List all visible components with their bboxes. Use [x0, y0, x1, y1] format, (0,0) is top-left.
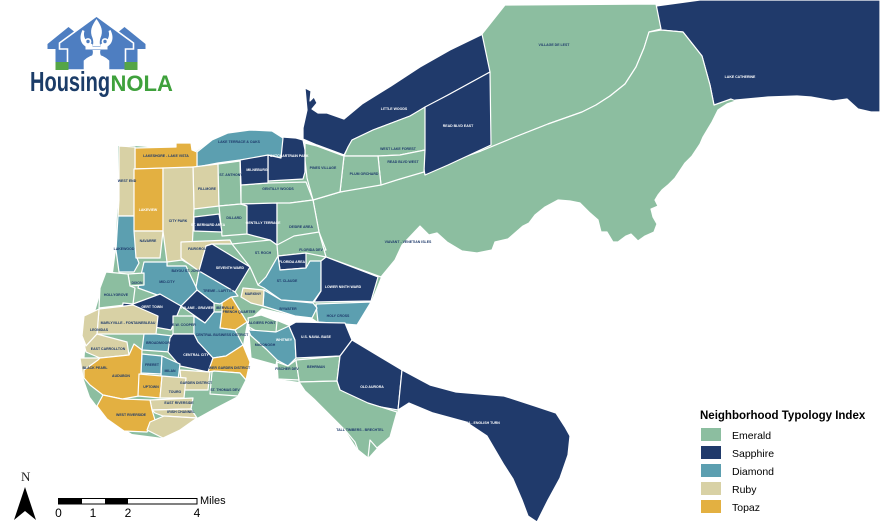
svg-text:VILLAGE DE LEST: VILLAGE DE LEST [539, 43, 571, 47]
svg-text:BAYOU ST. JOHN: BAYOU ST. JOHN [171, 269, 201, 273]
svg-text:FLORIDA DEV: FLORIDA DEV [299, 248, 323, 252]
svg-text:Emerald: Emerald [732, 430, 771, 442]
svg-text:GENTILLY TERRACE: GENTILLY TERRACE [246, 221, 281, 225]
svg-text:ALGIERS POINT: ALGIERS POINT [248, 321, 276, 325]
svg-text:Sapphire: Sapphire [732, 448, 774, 460]
svg-text:CENTRAL BUSINESS DISTRICT: CENTRAL BUSINESS DISTRICT [196, 333, 249, 337]
svg-text:CITY PARK: CITY PARK [169, 219, 188, 223]
svg-text:LAKE CATHERINE: LAKE CATHERINE [725, 75, 756, 79]
svg-text:TULANE - GRAVIER: TULANE - GRAVIER [181, 306, 214, 310]
svg-text:1: 1 [90, 506, 97, 520]
svg-text:FILLMORE: FILLMORE [198, 187, 217, 191]
svg-text:DILLARD: DILLARD [226, 216, 242, 220]
svg-text:LAKESHORE - LAKE VISTA: LAKESHORE - LAKE VISTA [143, 154, 189, 158]
svg-text:Miles: Miles [200, 495, 226, 507]
svg-text:VIAVANT - VENETIAN ISLES: VIAVANT - VENETIAN ISLES [385, 240, 432, 244]
svg-text:NOLA: NOLA [111, 71, 173, 96]
svg-text:CENTRAL CITY: CENTRAL CITY [183, 353, 209, 357]
svg-text:Topaz: Topaz [732, 502, 760, 514]
svg-text:E.W. COOPER: E.W. COOPER [172, 323, 196, 327]
svg-text:LOWER GARDEN DISTRICT: LOWER GARDEN DISTRICT [204, 366, 251, 370]
svg-text:4: 4 [194, 506, 201, 520]
svg-text:LITTLE WOODS: LITTLE WOODS [381, 107, 408, 111]
svg-text:LEONIDAS: LEONIDAS [90, 328, 109, 332]
svg-text:LAKE TERRACE & OAKS: LAKE TERRACE & OAKS [218, 140, 261, 144]
svg-text:HOLY CROSS: HOLY CROSS [327, 314, 350, 318]
svg-text:ST. ANTHONY: ST. ANTHONY [219, 173, 243, 177]
svg-text:TOURO: TOURO [169, 390, 182, 394]
svg-text:Ruby: Ruby [732, 484, 757, 496]
svg-text:Neighborhood Typology Index: Neighborhood Typology Index [700, 410, 866, 422]
svg-text:FRENCH QUARTER: FRENCH QUARTER [223, 310, 256, 314]
svg-text:GERT TOWN: GERT TOWN [141, 305, 163, 309]
svg-text:PLUM ORCHARD: PLUM ORCHARD [350, 172, 379, 176]
svg-text:FRERET: FRERET [145, 363, 160, 367]
svg-text:DESIRE AREA: DESIRE AREA [289, 225, 313, 229]
svg-text:BLACK PEARL: BLACK PEARL [82, 366, 108, 370]
svg-text:DIXON: DIXON [131, 281, 143, 285]
svg-text:Housing: Housing [30, 67, 110, 98]
svg-text:READ BLVD WEST: READ BLVD WEST [387, 160, 419, 164]
svg-text:ST. CLAUDE: ST. CLAUDE [277, 279, 298, 283]
svg-text:AUDUBON: AUDUBON [112, 374, 130, 378]
svg-text:MILNEBURG: MILNEBURG [246, 168, 267, 172]
svg-text:LOWER NINTH WARD: LOWER NINTH WARD [325, 285, 362, 289]
svg-text:LAKEWOOD: LAKEWOOD [114, 247, 135, 251]
svg-text:FAIRGROUNDS: FAIRGROUNDS [188, 247, 215, 251]
svg-text:LAKEVIEW: LAKEVIEW [139, 208, 158, 212]
svg-text:HOLLYGROVE: HOLLYGROVE [104, 293, 129, 297]
svg-text:GENTILLY WOODS: GENTILLY WOODS [262, 187, 294, 191]
svg-text:WEST RIVERSIDE: WEST RIVERSIDE [116, 413, 147, 417]
svg-text:SEVENTH WARD: SEVENTH WARD [216, 266, 245, 270]
svg-text:BYWATER: BYWATER [279, 307, 297, 311]
svg-text:PONTCHARTRAIN PARK: PONTCHARTRAIN PARK [267, 154, 309, 158]
svg-text:IRISH CHANNEL: IRISH CHANNEL [167, 410, 195, 414]
svg-text:2: 2 [125, 506, 132, 520]
svg-text:WHITNEY: WHITNEY [276, 338, 293, 342]
svg-text:0: 0 [55, 506, 62, 520]
svg-text:WEST LAKE FOREST: WEST LAKE FOREST [380, 147, 417, 151]
svg-text:McDONOGH: McDONOGH [255, 343, 276, 347]
svg-text:PINES VILLAGE: PINES VILLAGE [310, 166, 337, 170]
svg-text:MID-CITY: MID-CITY [159, 280, 175, 284]
svg-text:TREME - LAFITTE: TREME - LAFITTE [203, 289, 233, 293]
svg-text:IBERVILLE: IBERVILLE [216, 306, 235, 310]
svg-text:FLORIDA AREA: FLORIDA AREA [279, 260, 306, 264]
svg-text:FISCHER DEV: FISCHER DEV [275, 367, 299, 371]
svg-text:ST. ROCH: ST. ROCH [255, 251, 272, 255]
svg-text:UPTOWN: UPTOWN [143, 385, 159, 389]
svg-text:MARIGNY: MARIGNY [245, 292, 262, 296]
svg-text:READ BLVD EAST: READ BLVD EAST [443, 124, 474, 128]
svg-text:OLD AURORA: OLD AURORA [360, 385, 384, 389]
svg-text:TALL TIMBERS - BRECHTEL: TALL TIMBERS - BRECHTEL [336, 428, 384, 432]
svg-text:NAVARRE: NAVARRE [140, 239, 157, 243]
svg-text:GARDEN DISTRICT: GARDEN DISTRICT [180, 381, 213, 385]
svg-text:BROADMOOR: BROADMOOR [146, 341, 170, 345]
svg-text:EAST RIVERSIDE: EAST RIVERSIDE [164, 401, 194, 405]
svg-text:NEW AURORA - ENGLISH TURN: NEW AURORA - ENGLISH TURN [446, 421, 500, 425]
svg-text:U.S. NAVAL BASE: U.S. NAVAL BASE [301, 335, 332, 339]
svg-text:Diamond: Diamond [732, 466, 774, 478]
svg-text:ST. THOMAS DEV: ST. THOMAS DEV [210, 388, 240, 392]
svg-text:WEST END: WEST END [118, 179, 137, 183]
svg-text:ST. BERNARD AREA: ST. BERNARD AREA [191, 223, 226, 227]
svg-text:N: N [21, 469, 31, 484]
svg-text:MARLYVILLE - FONTAINEBLEAU: MARLYVILLE - FONTAINEBLEAU [101, 321, 156, 325]
svg-text:BEHRMAN: BEHRMAN [307, 365, 325, 369]
svg-text:EAST CARROLLTON: EAST CARROLLTON [91, 347, 126, 351]
svg-text:MILAN: MILAN [164, 369, 176, 373]
